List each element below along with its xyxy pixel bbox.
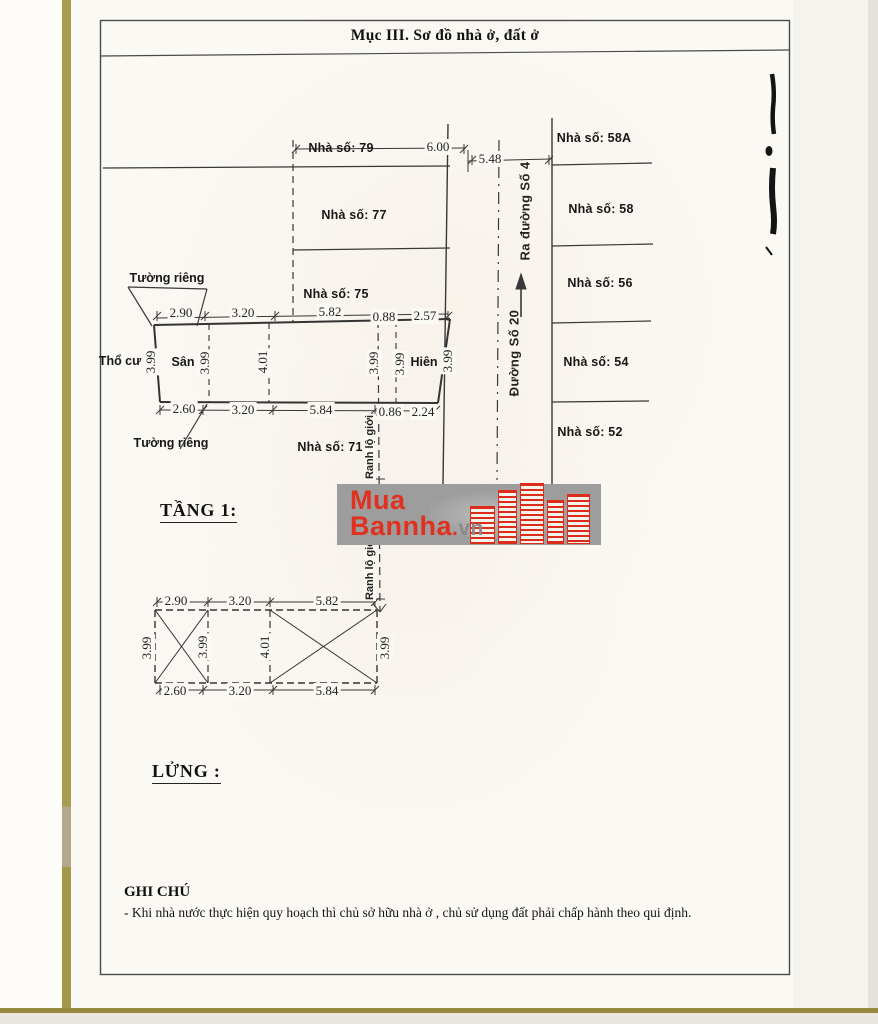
- dimension-ticks: [153, 144, 553, 695]
- building-tower-icon: [498, 490, 517, 544]
- boundary-label-1: Ranh lộ giới: [364, 414, 376, 480]
- plan-vert-dim-2: 3.99: [195, 634, 211, 661]
- direction-arrow-head: [516, 274, 526, 289]
- house-label-58: Nhà số: 58: [568, 202, 633, 216]
- plan-top-dim-3: 5.82: [314, 593, 341, 609]
- plan-top-dim-2: 3.20: [227, 593, 254, 609]
- ink-marks: [766, 74, 775, 255]
- plot-vert-dim-4: 3.99: [366, 350, 382, 377]
- road-dim-6: 6.00: [425, 139, 452, 155]
- plot-top-dim-4: 0.88: [371, 309, 398, 325]
- plot-bottom-dim-1: 2.60: [171, 401, 198, 417]
- road-center-line: [497, 140, 499, 480]
- section-title: Mục III. Sơ đồ nhà ở, đất ở: [100, 27, 790, 45]
- residential-land-label: Thổ cư: [99, 354, 141, 368]
- road-left-line: [443, 124, 448, 484]
- plan-vert-dim-1: 3.99: [139, 635, 155, 662]
- plot-top-dim-2: 3.20: [230, 305, 257, 321]
- scanned-page: Mục III. Sơ đồ nhà ở, đất ở GHI CHÚ - Kh…: [0, 0, 878, 1024]
- to-street-label: Ra đường Số 4: [518, 162, 533, 261]
- plot-vert-dim-6: 3.99: [440, 348, 456, 375]
- house-label-58A: Nhà số: 58A: [557, 131, 631, 145]
- watermark-line2: Bannha.vn: [350, 513, 484, 540]
- note-body: - Khi nhà nước thực hiện quy hoạch thì c…: [124, 905, 776, 921]
- house-label-52: Nhà số: 52: [557, 425, 622, 439]
- watermark-line1: Mua: [350, 487, 484, 513]
- plan-bottom-dim-2: 3.20: [227, 683, 254, 699]
- floor1-heading: TẦNG 1:: [160, 500, 237, 523]
- road-lines: [443, 118, 552, 484]
- plot-bottom-dim-5: 2.24: [410, 404, 437, 420]
- building-tower-icon: [547, 500, 564, 544]
- note-heading: GHI CHÚ: [124, 884, 190, 901]
- buildings-icon: [470, 483, 590, 544]
- plot-vert-dim-2: 3.99: [197, 350, 213, 377]
- plot-bottom-dim-3: 5.84: [308, 402, 335, 418]
- house-label-75: Nhà số: 75: [303, 287, 368, 301]
- street-label: Đường Số 20: [507, 310, 522, 397]
- private-wall-label-bottom: Tường riêng: [134, 436, 209, 450]
- plot-top-dim-5: 2.57: [412, 308, 439, 324]
- porch-label: Hiên: [410, 355, 437, 369]
- plot-bottom-dim-2: 3.20: [230, 402, 257, 418]
- building-tower-icon: [520, 483, 544, 544]
- private-wall-label-top: Tường riêng: [130, 271, 205, 285]
- plot-top-dim-3: 5.82: [317, 304, 344, 320]
- watermark-logo: Mua Bannha.vn: [350, 487, 484, 540]
- mezzanine-heading: LỬNG :: [152, 761, 221, 784]
- plot-top-dim-1: 2.90: [168, 305, 195, 321]
- plan-vert-dim-3: 4.01: [257, 634, 273, 661]
- house-label-79: Nhà số: 79: [308, 141, 373, 155]
- house-label-54: Nhà số: 54: [563, 355, 628, 369]
- road-dim-548: 5.48: [477, 151, 504, 167]
- plan-bottom-dim-1: 2.60: [162, 683, 189, 699]
- dimension-lines: [157, 148, 552, 690]
- plot-bottom-dim-4: 0.86: [377, 404, 404, 420]
- plan-vert-dim-4: 3.99: [377, 635, 393, 662]
- house-label-71: Nhà số: 71: [297, 440, 362, 454]
- house-label-56: Nhà số: 56: [567, 276, 632, 290]
- building-tower-icon: [567, 494, 590, 544]
- plan-bottom-dim-3: 5.84: [314, 683, 341, 699]
- plot-vert-dim-5: 3.99: [392, 351, 408, 378]
- plot-vert-dim-3: 4.01: [255, 349, 271, 376]
- yard-label: Sân: [172, 355, 195, 369]
- plot-vert-dim-1: 3.99: [143, 349, 159, 376]
- title-divider: [100, 50, 789, 56]
- plan-top-dim-1: 2.90: [163, 593, 190, 609]
- house-label-77: Nhà số: 77: [321, 208, 386, 222]
